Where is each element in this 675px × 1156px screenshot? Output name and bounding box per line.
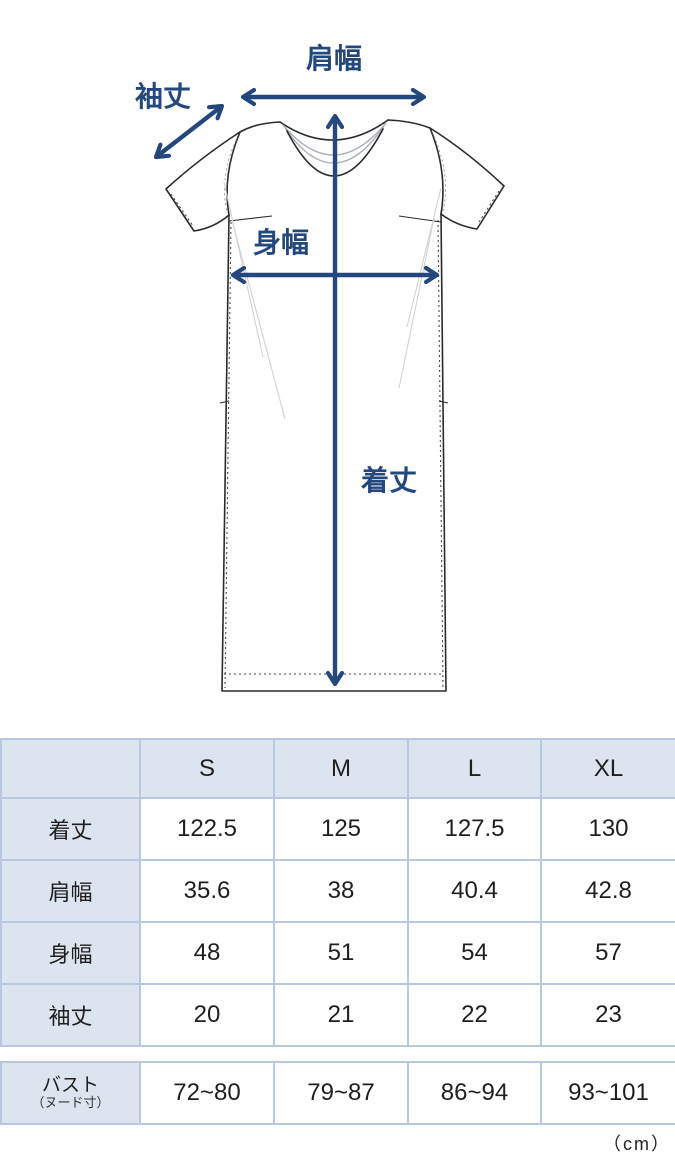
- label-body-width: 身幅: [253, 226, 309, 258]
- row-label: 着丈: [1, 798, 140, 860]
- size-cell: 23: [541, 984, 675, 1046]
- label-garment-length: 着丈: [360, 464, 417, 496]
- size-cell: 79~87: [274, 1062, 408, 1124]
- bust-row-label: バスト （ヌード寸）: [1, 1062, 140, 1124]
- size-table: S M L XL 着丈 122.5 125 127.5 130 肩幅 35.6 …: [0, 738, 675, 1047]
- label-sleeve-length: 袖丈: [135, 81, 191, 112]
- size-cell: 38: [274, 860, 408, 922]
- size-cell: 35.6: [140, 860, 274, 922]
- size-cell: 127.5: [408, 798, 541, 860]
- size-cell: 93~101: [541, 1062, 675, 1124]
- row-label: 身幅: [1, 922, 140, 984]
- table-row-bust: バスト （ヌード寸） 72~80 79~87 86~94 93~101: [1, 1062, 675, 1124]
- row-label: 肩幅: [1, 860, 140, 922]
- size-cell: 57: [541, 922, 675, 984]
- size-cell: 42.8: [541, 860, 675, 922]
- corner-cell: [1, 739, 140, 798]
- bust-label-main: バスト: [3, 1075, 138, 1097]
- table-row-garment-length: 着丈 122.5 125 127.5 130: [1, 798, 675, 860]
- unit-note: （cm）: [0, 1125, 675, 1156]
- size-cell: 86~94: [408, 1062, 541, 1124]
- label-shoulder-width: 肩幅: [306, 42, 362, 74]
- col-header-l: L: [408, 739, 541, 798]
- size-cell: 51: [274, 922, 408, 984]
- table-row-body-width: 身幅 48 51 54 57: [1, 922, 675, 984]
- col-header-s: S: [140, 739, 274, 798]
- size-cell: 40.4: [408, 860, 541, 922]
- size-cell: 130: [541, 798, 675, 860]
- right-sleeve: [430, 128, 504, 229]
- size-table-header-row: S M L XL: [1, 739, 675, 798]
- size-cell: 72~80: [140, 1062, 274, 1124]
- col-header-xl: XL: [541, 739, 675, 798]
- size-cell: 122.5: [140, 798, 274, 860]
- table-row-sleeve-length: 袖丈 20 21 22 23: [1, 984, 675, 1046]
- size-cell: 125: [274, 798, 408, 860]
- measure-arrows: [156, 97, 437, 684]
- sleeve-length-arrow: [156, 106, 222, 157]
- size-cell: 20: [140, 984, 274, 1046]
- bust-table: バスト （ヌード寸） 72~80 79~87 86~94 93~101: [0, 1061, 675, 1125]
- size-cell: 48: [140, 922, 274, 984]
- size-cell: 54: [408, 922, 541, 984]
- garment-diagram: 肩幅 袖丈 身幅 着丈: [0, 0, 675, 738]
- size-cell: 21: [274, 984, 408, 1046]
- bust-label-sub: （ヌード寸）: [3, 1096, 138, 1111]
- table-row-shoulder-width: 肩幅 35.6 38 40.4 42.8: [1, 860, 675, 922]
- col-header-m: M: [274, 739, 408, 798]
- size-guide-page: 肩幅 袖丈 身幅 着丈 S M L XL 着丈 122.5 125 127.5: [0, 0, 675, 1133]
- size-cell: 22: [408, 984, 541, 1046]
- row-label: 袖丈: [1, 984, 140, 1046]
